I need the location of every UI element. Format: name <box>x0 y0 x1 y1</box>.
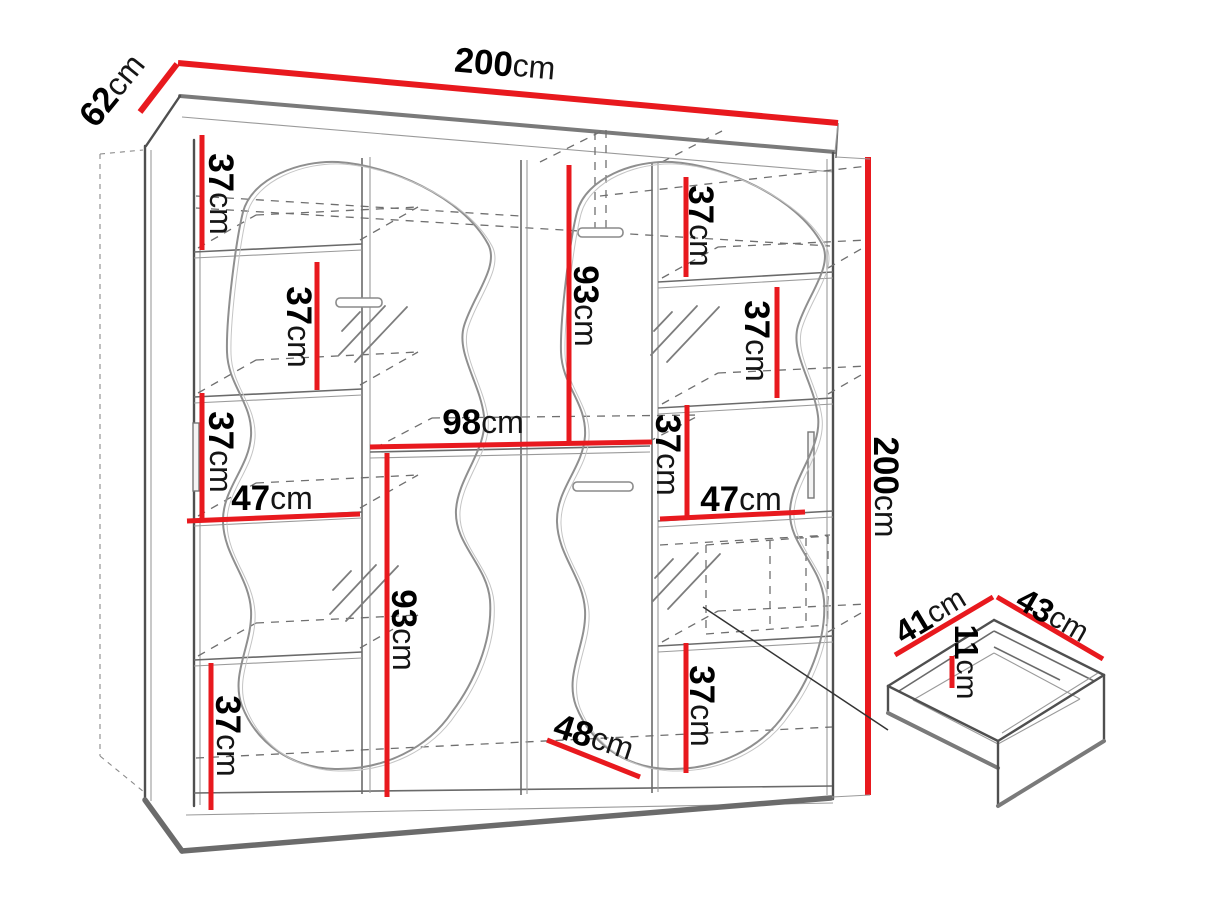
hidden-floor-back-edge <box>196 727 832 758</box>
shelf-hidden-dash <box>660 535 830 545</box>
door-bottom-edge <box>194 786 832 793</box>
label-left-gap-mid: 37cm <box>280 286 319 368</box>
label-left-gap-bottom: 37cm <box>209 695 248 777</box>
hanging-rod-center <box>573 482 633 491</box>
drawer-floor-front-left <box>913 700 998 744</box>
label-drawer-height: 11cm <box>949 625 986 700</box>
bottom-left-bevel <box>145 800 182 851</box>
shelf-depth-dash <box>360 207 418 240</box>
hidden-left-bottom-edge <box>100 756 144 792</box>
label-width-top: 200cm <box>453 40 557 88</box>
dim-tick-top <box>836 157 870 159</box>
shelf-back-dash <box>718 604 868 611</box>
label-right-gap-upper: 37cm <box>738 300 777 382</box>
label-depth-top: 62cm <box>71 46 153 134</box>
hanging-rod-right-top <box>578 228 623 237</box>
shelf-back-dash <box>256 207 418 215</box>
label-height-right: 200cm <box>867 436 906 537</box>
shelf-depth-dash <box>662 611 718 642</box>
label-drawer-width: 43cm <box>1011 580 1096 650</box>
dim-tick-bottom <box>832 795 870 797</box>
drawer-front-panel-top <box>998 675 1104 741</box>
left-door-handle <box>193 423 199 491</box>
bottom-outer-edge <box>182 798 831 851</box>
label-right-gap-mid: 37cm <box>649 414 688 496</box>
drawer-right-wall-bottom <box>994 647 1060 680</box>
wardrobe-dimension-diagram: 200cm 62cm 200cm 37cm 37cm 37cm 47cm 37c… <box>0 0 1214 911</box>
top-left-bevel <box>146 96 180 146</box>
label-right-width: 47cm <box>700 480 782 519</box>
hanging-rod-left <box>336 298 382 307</box>
drawer-box-dash-bottom <box>706 625 828 634</box>
shelf-front-edge <box>658 398 833 408</box>
shelf-depth-dash <box>360 352 418 385</box>
shelf-depth-dash <box>198 360 256 393</box>
drawer-front-panel-bottom <box>998 741 1104 806</box>
drawer-front-panel-inner <box>1002 673 1098 733</box>
right-door-handle <box>808 432 814 498</box>
shelf-back-dash <box>256 352 418 360</box>
shelf-bottom-edge <box>658 278 833 288</box>
drawer-pointer-line <box>703 607 888 730</box>
hidden-top-right-edge <box>600 166 868 196</box>
hidden-diagonal-top <box>540 130 604 162</box>
hidden-left-top-edge <box>100 150 143 154</box>
shelf-bottom-edge <box>658 404 833 414</box>
left-mirror-outline <box>223 162 491 769</box>
hidden-diagonal-top-2 <box>662 131 722 162</box>
label-left-hanging-height: 93cm <box>385 589 424 671</box>
mirror-doors <box>223 162 829 771</box>
middle-section <box>336 228 700 491</box>
diagram-canvas: 200cm 62cm 200cm 37cm 37cm 37cm 47cm 37c… <box>0 0 1214 911</box>
label-center-height-top: 93cm <box>567 265 606 347</box>
drawer-left-wall-bottom <box>888 713 998 768</box>
label-left-gap-top: 37cm <box>202 153 241 235</box>
label-right-gap-bottom: 37cm <box>683 665 722 747</box>
middle-shelf-bottom-edge <box>370 452 650 458</box>
drawer-floor-front-right <box>998 699 1080 744</box>
drawer-box-dash-top <box>706 536 828 545</box>
label-shelf-width: 98cm <box>442 403 524 442</box>
middle-shelf-depth-dash <box>375 418 432 448</box>
label-right-gap-top: 37cm <box>682 185 721 267</box>
shelf-depth-dash <box>662 373 718 404</box>
label-left-width: 47cm <box>231 479 313 518</box>
top-front-edge <box>180 96 835 152</box>
